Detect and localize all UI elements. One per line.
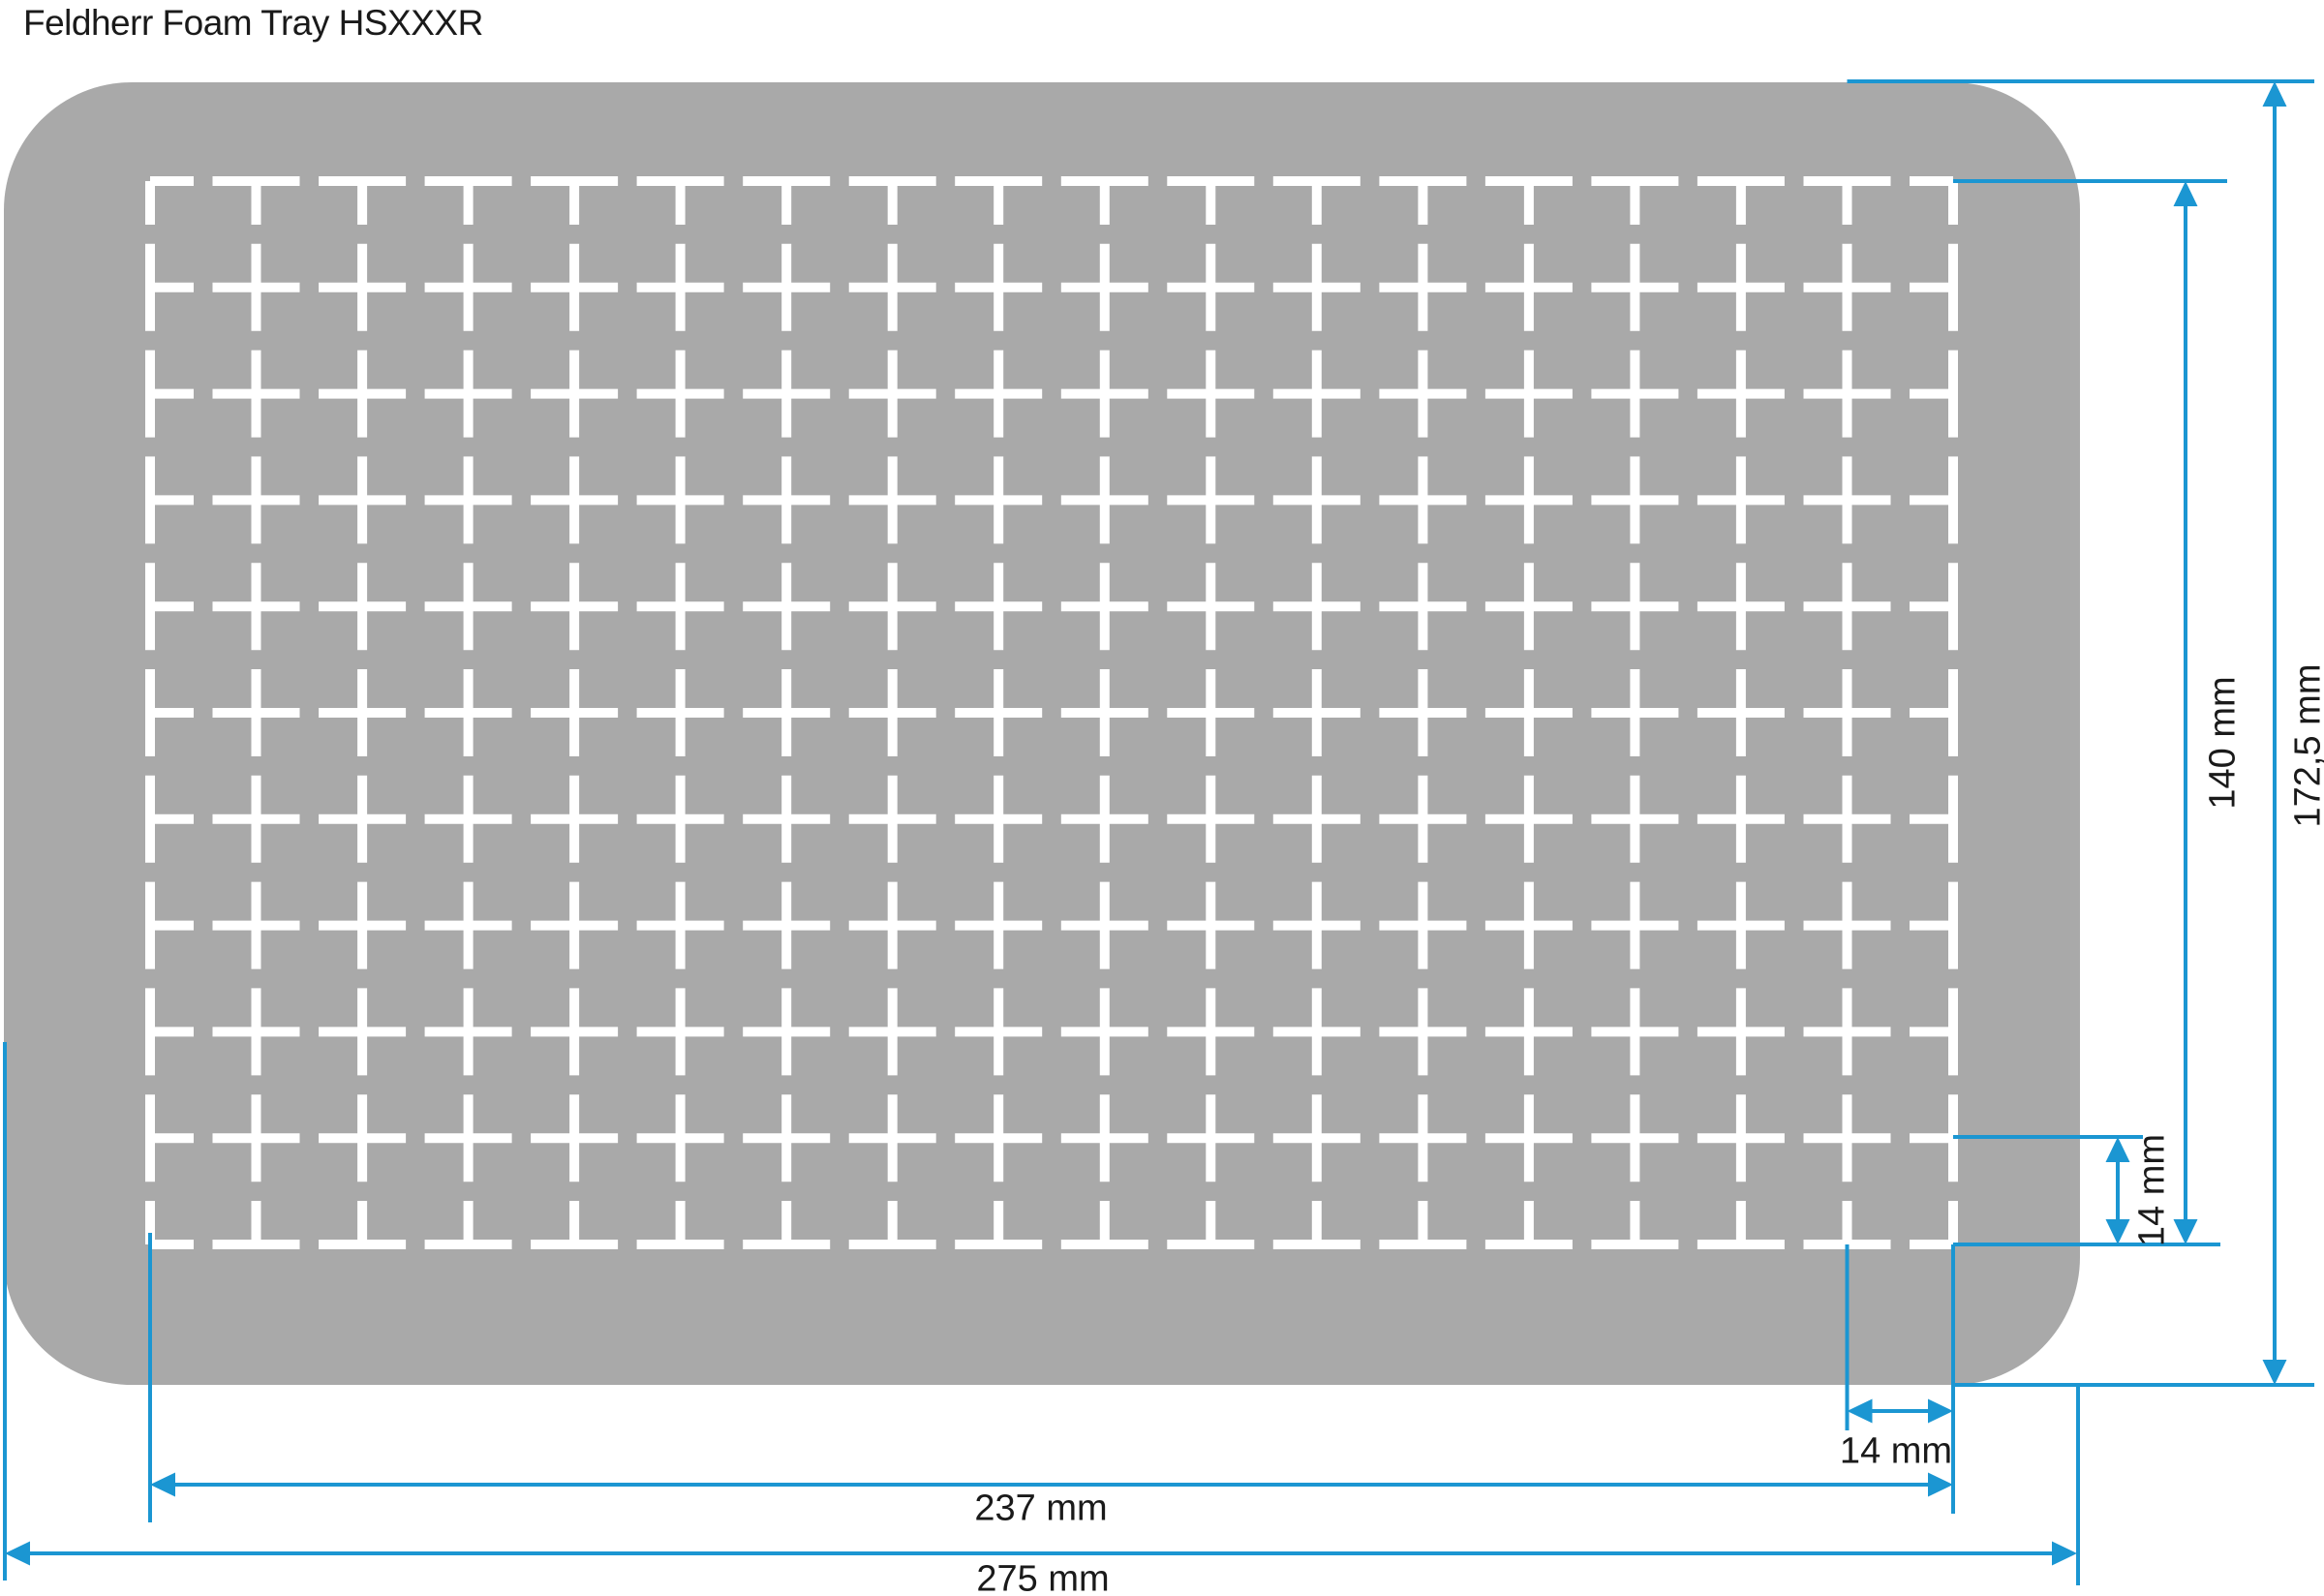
dim-label-grid-height: 140 mm: [2203, 676, 2245, 809]
dim-label-cell-height: 14 mm: [2132, 1134, 2174, 1246]
grid-crosses: [150, 181, 1953, 1244]
extension-lines: [5, 81, 2314, 1585]
dim-label-grid-width: 237 mm: [974, 1489, 1107, 1530]
grid-and-dimension-drawing: [0, 0, 2324, 1596]
dim-label-tray-width: 275 mm: [976, 1559, 1109, 1596]
diagram-page: Feldherr Foam Tray HSXXXR 140 mm 172,5 m…: [0, 0, 2324, 1596]
dim-label-cell-width: 14 mm: [1840, 1431, 1952, 1473]
dim-label-tray-height: 172,5 mm: [2288, 664, 2324, 828]
